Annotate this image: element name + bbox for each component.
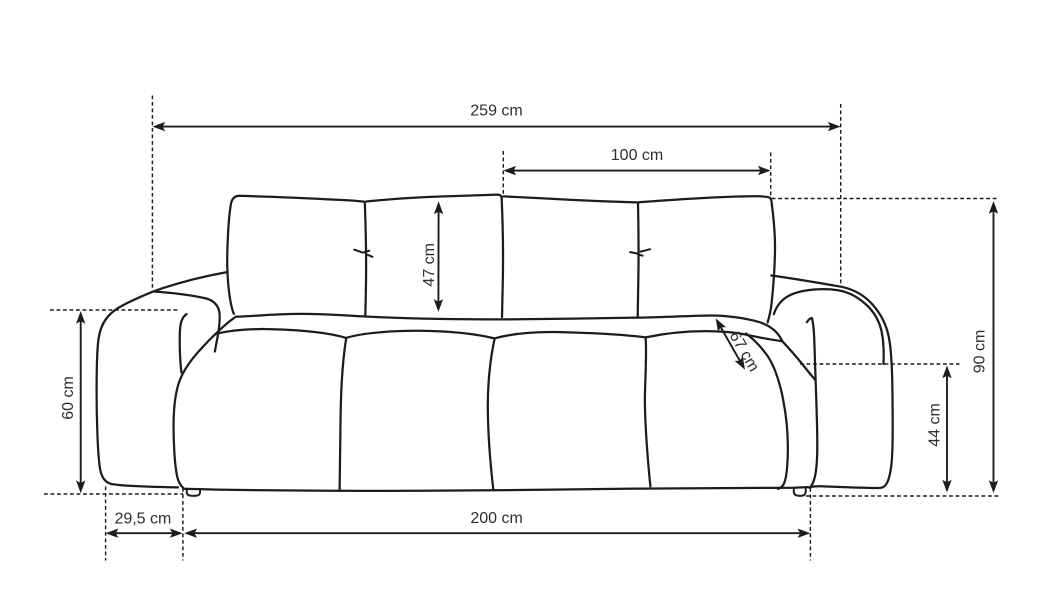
svg-text:44 cm: 44 cm (927, 403, 944, 447)
svg-text:90 cm: 90 cm (972, 330, 989, 374)
svg-text:100 cm: 100 cm (611, 147, 663, 164)
svg-text:29,5 cm: 29,5 cm (114, 510, 171, 527)
svg-text:47 cm: 47 cm (421, 243, 438, 287)
svg-text:200 cm: 200 cm (470, 510, 522, 527)
svg-text:259 cm: 259 cm (470, 102, 522, 119)
svg-text:60 cm: 60 cm (60, 376, 77, 420)
